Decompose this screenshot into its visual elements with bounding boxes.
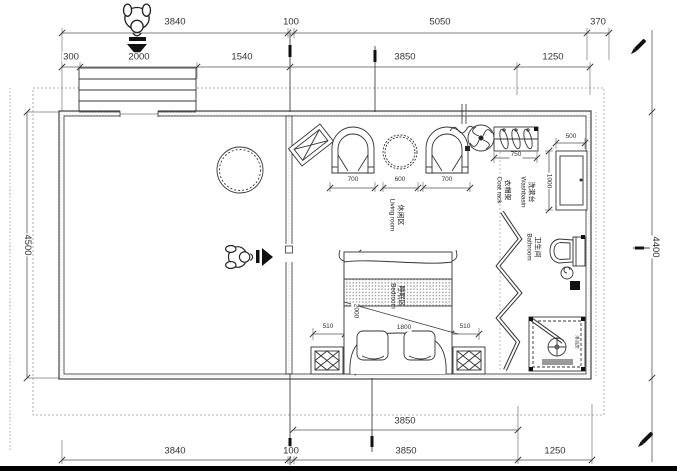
pillow-right: [404, 331, 435, 360]
room-label-en: Living room: [388, 199, 395, 232]
room-label-washbasin: 洗漱台 Washbasin: [519, 177, 534, 208]
nightstand-left: [311, 347, 343, 374]
dim-label: 600: [394, 177, 407, 184]
room-label-en: Bedroom: [389, 283, 396, 309]
pen-icon: [637, 432, 654, 449]
armchair-left: [332, 127, 374, 173]
dim-label: 1250: [541, 52, 564, 62]
dim-label-left-height: 4500: [22, 233, 32, 256]
room-label-zh: 衣帽架: [503, 177, 511, 204]
room-label-zh: 洗漱台: [527, 177, 535, 208]
room-label-shower: 淋浴房: [574, 335, 579, 349]
arrow-right-icon: [256, 250, 260, 263]
fan-icon: [465, 125, 494, 151]
entry-steps: [79, 68, 196, 112]
dim-label: 2000: [352, 303, 359, 319]
nightstand-right: [453, 347, 485, 374]
dim-label: 5050: [428, 17, 451, 27]
dim-label: 3850: [394, 446, 417, 456]
room-label-zh: 卫生间: [533, 233, 541, 260]
dim-label: 300: [62, 52, 80, 62]
zigzag-partition: [498, 212, 520, 370]
dim-label: 1540: [230, 52, 253, 62]
dim-label: 700: [347, 177, 360, 184]
dim-label: 2000: [127, 52, 150, 62]
dim-label: 1250: [543, 446, 566, 456]
living-room-furniture: [288, 124, 494, 173]
pen-icon: [630, 39, 647, 56]
dim-label: 3850: [393, 416, 416, 426]
room-label-bedroom: 睡眠区 Bedroom: [389, 283, 404, 309]
person-top-view-icon: [226, 246, 253, 269]
washbasin: [556, 151, 587, 210]
floor-plan-page: 3840 100 5050 370 300 2000 1540 3850 125…: [0, 0, 677, 473]
dim-label: 700: [441, 177, 454, 184]
dim-label: 510: [322, 324, 335, 331]
left-room: [217, 147, 263, 193]
dim-label: 3840: [163, 17, 186, 27]
dim-label: 510: [459, 324, 472, 331]
dim-label: 750: [510, 152, 523, 159]
pillow-left: [357, 331, 388, 360]
armchair-right: [426, 127, 468, 173]
decor-panel: [288, 124, 333, 166]
room-label-living: 休闲区 Living room: [388, 199, 403, 232]
room-label-bathroom: 卫生间 Bathroom: [525, 233, 540, 260]
dim-label: 500: [565, 134, 578, 141]
room-label-zh: 休闲区: [396, 199, 404, 232]
room-label-en: Washbasin: [519, 177, 526, 208]
bottom-black-bar: [0, 466, 677, 471]
floor-plan-canvas: [0, 0, 677, 473]
room-label-en: Bathroom: [525, 233, 532, 260]
dim-label: 100: [282, 446, 300, 456]
dim-label-right-height: 4400: [650, 235, 660, 258]
coat-rack: [494, 127, 538, 151]
toilet: [550, 235, 585, 290]
shower-drain-icon: [548, 338, 566, 356]
tea-table: [383, 135, 417, 169]
room-label-coat-rack: 衣帽架 Coat rack: [495, 177, 510, 204]
axis-lines: [290, 33, 652, 465]
room-label-en: Coat rack: [495, 177, 502, 204]
dim-label: 1000: [545, 173, 552, 189]
person-top-view-icon: [124, 4, 151, 36]
dim-label: 100: [282, 17, 300, 27]
arrow-down-icon: [129, 37, 146, 41]
bed-group: [311, 250, 485, 374]
dim-label: 3850: [393, 52, 416, 62]
dim-label: 370: [589, 17, 607, 27]
dim-label: 1800: [396, 325, 412, 332]
room-label-zh: 淋浴房: [574, 335, 579, 349]
round-table: [217, 147, 263, 193]
room-label-zh: 睡眠区: [397, 283, 405, 309]
dim-label: 3840: [163, 446, 186, 456]
